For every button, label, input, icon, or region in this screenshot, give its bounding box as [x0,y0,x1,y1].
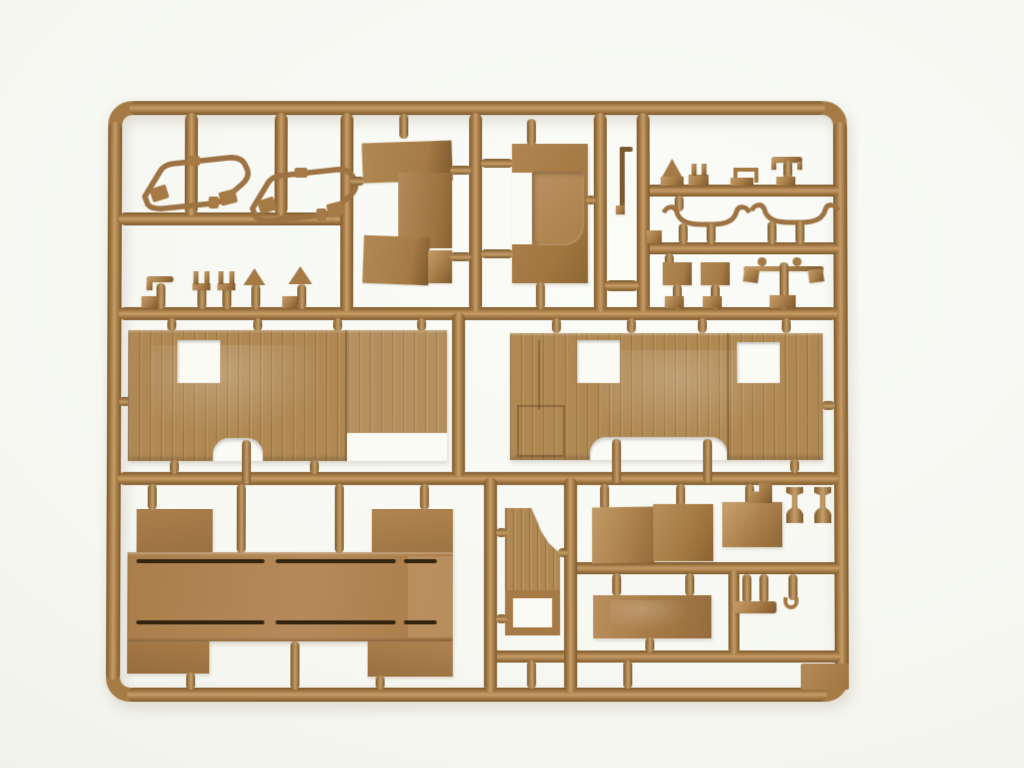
window-cutout [177,340,220,383]
bow-post [767,221,776,244]
sprue-gate [703,439,712,483]
sprue-gate [790,459,799,473]
seat-back-recess [532,172,584,246]
linkage-flap [743,268,760,283]
runner-mid-full [118,472,838,485]
flat-plate [701,262,730,285]
linkage-knob [758,257,767,266]
strut-mid-panels [452,312,465,477]
sprue-gate [496,614,507,623]
fork-part [217,283,235,290]
floor-slot [276,559,396,563]
runner-topright-1 [644,185,840,197]
sprue-gate [170,460,179,474]
sprue-gate [417,318,426,331]
fork-prong [692,164,697,176]
sprue-gate [335,484,344,553]
fork-prong [204,271,209,284]
sprue-gate [612,439,621,483]
window-cutout [577,340,620,383]
floor-right-face [408,556,453,637]
part-post [156,283,165,309]
sprue-gate [527,119,536,146]
floor-flap-bottom-left [127,641,209,673]
thin-rod-part [620,147,625,209]
fork-fitting-base [689,175,709,186]
step-block [703,296,722,308]
sprue-gate [698,318,707,333]
sprue-gate [600,484,609,510]
photo-of-model-kit-sprue [0,0,1024,768]
sprue-gate [290,641,299,689]
rod-part [742,574,751,603]
panel-sheen [610,600,690,630]
sprue-gate [558,548,568,557]
linkage-knob [793,257,802,266]
cab-panel-bottom-slab [362,235,430,285]
t-hook-curl [146,281,152,290]
sprue-gate [481,159,513,168]
panel-detail-line [538,340,540,410]
sprue-rail-bottom [127,688,827,702]
rod-part [759,574,768,603]
runner-bottomright-2 [490,650,841,662]
sprue-gate [350,177,364,186]
sprue-gate [237,484,246,553]
linkage-base [770,295,796,308]
panel-seam [727,333,729,460]
strut-b [274,113,287,215]
window-cutout [737,342,780,383]
sprue-gate [552,318,561,333]
sprue-gate [675,196,684,212]
sprue-gate [450,252,471,261]
t-fitting-curl [797,162,802,170]
floor-slot [136,620,264,624]
strut-f [637,113,650,312]
t-fitting-base [776,177,795,186]
part-post [297,284,306,309]
floor-flap-bottom-right [368,641,453,676]
fender-panel [592,507,654,564]
runner-bottomright-1 [570,562,840,574]
runner-topright-2 [644,242,840,254]
sprue-gate [645,637,654,652]
sprue-gate [310,460,319,474]
fork-prong [218,271,223,284]
sprue-gate [536,282,545,309]
sprue-gate [242,440,251,484]
bow-post [707,223,716,244]
sprue-gate [822,401,835,410]
sprue-rail-right [833,122,849,680]
sprue-tree [0,2,1024,768]
seat-notch-cutout [512,173,532,245]
door-window-frame [505,590,560,635]
stowage-box-panel [722,502,782,547]
strut-door-right [564,477,577,693]
linkage-flap [808,268,825,283]
floor-slot [404,559,437,563]
u-bracket-base [730,178,753,186]
sprue-gate [167,318,176,331]
sprue-gate [685,573,694,596]
fork-part [192,283,210,290]
thin-rod-tip [620,147,633,152]
sprue-gate [186,673,195,690]
blank-corner-tab [801,664,849,690]
bow-post [795,221,804,244]
strut-d [469,113,482,312]
floor-slot [136,559,264,563]
fork-prong [702,164,707,176]
sprue-gate [623,661,632,689]
strut-c [340,113,353,312]
step-block [141,296,157,308]
floor-slot [276,620,396,624]
sprue-gate [376,676,385,690]
sprue-gate [612,573,621,596]
step-block [665,296,684,308]
background-gap [347,433,447,461]
step-block [282,296,297,308]
sprue-gate [399,114,408,139]
strut-door-left [484,477,497,693]
t-fitting-curl [771,162,776,170]
floor-flap-top-right [372,509,453,553]
strut-ef-connector [605,280,639,291]
flat-plate [663,262,692,285]
sprue-gate [627,318,636,333]
rod-bracket-base [734,601,776,613]
sprue-gate [450,166,471,175]
floor-slot [404,620,437,624]
fork-prong [193,271,198,284]
sprue-gate [527,661,536,689]
sprue-gate [333,318,342,331]
cab-panel-foot [428,250,452,283]
floor-main [127,552,453,641]
runner-top-left-divider [119,212,354,225]
part-post [251,284,260,309]
sprue-gate [148,484,157,510]
fork-prong [229,271,234,284]
wheel-arch-cutout [213,438,263,461]
sprue-gate [253,318,262,331]
fender-panel [653,504,713,561]
sprue-gate [420,484,429,510]
thin-rod-foot [616,206,625,215]
step-block [647,230,662,243]
sprue-gate [481,249,513,258]
bow-post [679,223,688,244]
cone-base [661,177,684,186]
sprue-gate [496,528,507,537]
door-detail-outline [517,405,565,457]
floor-flap-top-left [136,509,212,553]
sprue-gate [586,196,596,205]
sprue-gate [782,318,791,333]
strut-a [185,113,198,215]
